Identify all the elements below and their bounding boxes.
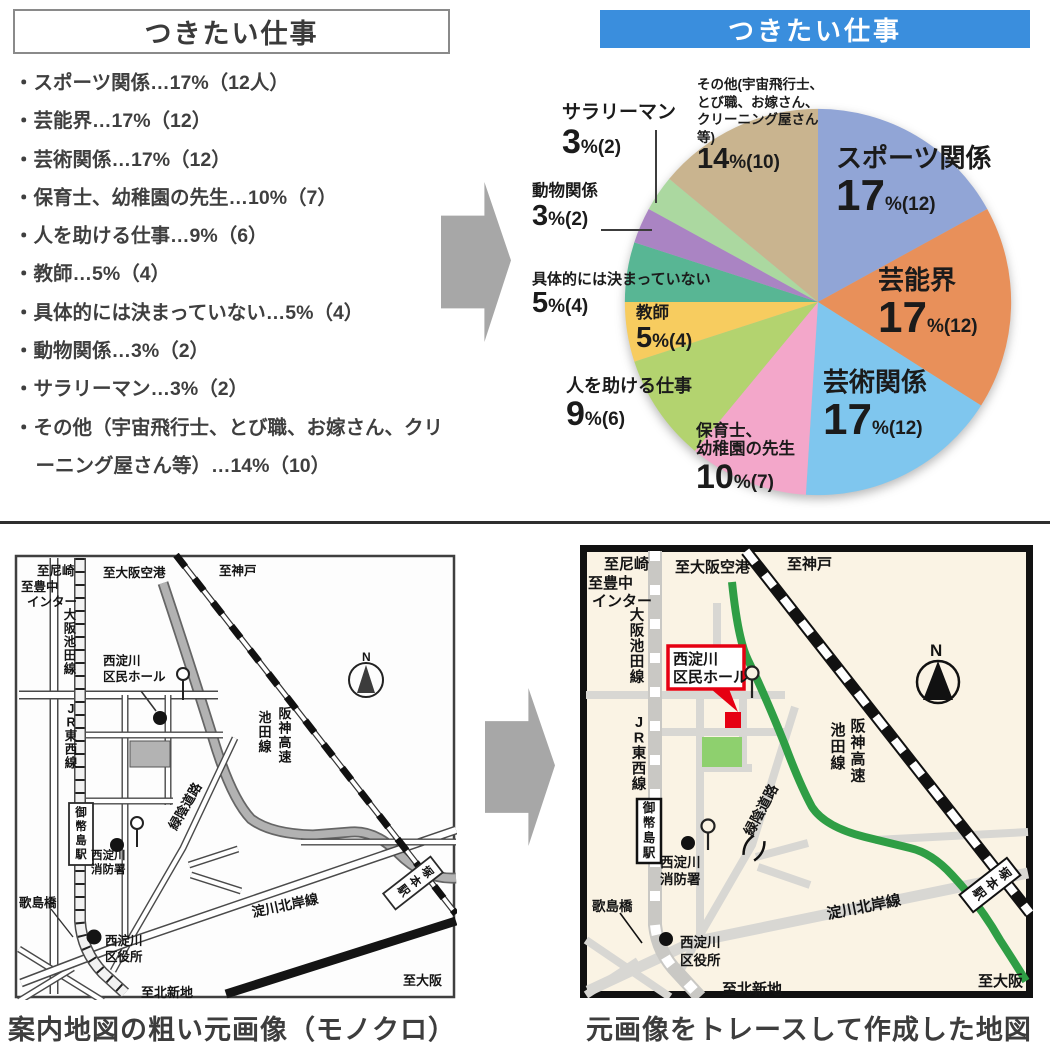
job-list: スポーツ関係…17%（12人） 芸能界…17%（12） 芸術関係…17%（12）… xyxy=(14,64,459,485)
svg-text:阪神高速: 阪神高速 xyxy=(850,718,866,785)
park-block xyxy=(130,741,170,767)
svg-text:池田線: 池田線 xyxy=(830,721,845,772)
svg-text:西淀川: 西淀川 xyxy=(680,934,721,950)
svg-text:大阪池田線: 大阪池田線 xyxy=(64,607,77,676)
pie-label-geijutsu: 芸術関係 17%(12) xyxy=(823,368,927,444)
svg-text:歌島橋: 歌島橋 xyxy=(592,898,633,914)
ward-office-dot xyxy=(87,930,102,945)
map-monochrome: 御幣島駅 塚本駅 N 至尼崎 至大阪空港 至神戸 xyxy=(13,553,457,1000)
svg-text:N: N xyxy=(362,650,371,664)
svg-text:消防署: 消防署 xyxy=(91,862,126,876)
chart-title: つきたい仕事 xyxy=(728,11,902,48)
list-item: 人を助ける仕事…9%（6） xyxy=(14,217,459,255)
svg-text:至大阪空港: 至大阪空港 xyxy=(103,565,166,580)
svg-text:至尼崎: 至尼崎 xyxy=(37,563,75,578)
list-title: つきたい仕事 xyxy=(145,12,319,51)
svg-text:至大阪: 至大阪 xyxy=(978,972,1024,990)
leader-line xyxy=(655,130,657,203)
hall-label: 西淀川 xyxy=(673,650,718,668)
svg-text:西淀川: 西淀川 xyxy=(103,653,141,668)
pie-label-hoikushi: 保育士、 幼稚園の先生 10%(7) xyxy=(696,423,795,495)
list-item: 教師…5%（4） xyxy=(14,255,459,293)
svg-text:至大阪: 至大阪 xyxy=(403,973,443,988)
pie-label-salaryman: サラリーマン 3%(2) xyxy=(562,103,676,160)
chart-title-banner: つきたい仕事 xyxy=(600,10,1030,48)
svg-text:至豊中: 至豊中 xyxy=(588,574,633,592)
svg-text:西淀川: 西淀川 xyxy=(105,933,143,948)
hall-marker-dot xyxy=(153,711,167,725)
transform-arrow-icon xyxy=(485,688,555,846)
svg-text:大阪池田線: 大阪池田線 xyxy=(630,606,645,686)
list-title-box: つきたい仕事 xyxy=(13,9,450,54)
svg-text:西淀川: 西淀川 xyxy=(91,848,126,862)
map-traced: 塚本駅 御幣島駅 N 西淀川 区民ホール xyxy=(580,545,1033,998)
svg-text:至大阪空港: 至大阪空港 xyxy=(675,558,751,576)
right-map-caption: 元画像をトレースして作成した地図 xyxy=(586,1008,1032,1047)
svg-text:至尼崎: 至尼崎 xyxy=(604,556,649,573)
fire-station-dot xyxy=(681,836,695,850)
svg-text:至神戸: 至神戸 xyxy=(219,563,257,578)
pie-label-dobutsu: 動物関係 3%(2) xyxy=(532,183,598,232)
svg-text:至北新地: 至北新地 xyxy=(141,985,193,1000)
leader-line xyxy=(601,229,652,231)
svg-text:区民ホール: 区民ホール xyxy=(103,670,166,684)
section-divider xyxy=(0,521,1050,524)
svg-text:N: N xyxy=(930,641,942,660)
pie-label-gutaiteki: 具体的には決まっていない 5%(4) xyxy=(532,272,711,320)
pie-label-tasukeru: 人を助ける仕事 9%(6) xyxy=(566,377,692,433)
svg-text:インター: インター xyxy=(27,594,77,609)
svg-text:阪神高速: 阪神高速 xyxy=(278,706,292,765)
list-item: 動物関係…3%（2） xyxy=(14,332,459,370)
list-item: サラリーマン…3%（2） xyxy=(14,370,459,408)
list-item: 具体的には決まっていない…5%（4） xyxy=(14,294,459,332)
pie-label-sonota: その他(宇宙飛行士、 とび職、お嫁さん、 クリーニング屋さん 等) 14%(10… xyxy=(697,76,823,176)
page: つきたい仕事 スポーツ関係…17%（12人） 芸能界…17%（12） 芸術関係…… xyxy=(0,0,1050,1050)
list-item: 保育士、幼稚園の先生…10%（7） xyxy=(14,179,459,217)
svg-text:西淀川: 西淀川 xyxy=(660,854,701,870)
list-item: その他（宇宙飛行士、とび職、お嫁さん、クリーニング屋さん等）…14%（10） xyxy=(14,409,459,486)
svg-text:至豊中: 至豊中 xyxy=(21,579,59,594)
svg-text:至北新地: 至北新地 xyxy=(722,980,782,998)
hall-marker-square xyxy=(725,712,741,728)
svg-text:区役所: 区役所 xyxy=(105,949,143,964)
list-item: 芸術関係…17%（12） xyxy=(14,141,459,179)
ward-office-dot xyxy=(659,932,673,946)
left-map-caption: 案内地図の粗い元画像（モノクロ） xyxy=(8,1008,456,1047)
svg-text:区役所: 区役所 xyxy=(680,952,721,968)
list-item: 芸能界…17%（12） xyxy=(14,102,459,140)
list-item: スポーツ関係…17%（12人） xyxy=(14,64,459,102)
svg-text:歌島橋: 歌島橋 xyxy=(19,895,57,910)
svg-text:至神戸: 至神戸 xyxy=(787,555,832,573)
park-block xyxy=(702,737,742,767)
svg-text:消防署: 消防署 xyxy=(660,871,701,887)
hall-label: 区民ホール xyxy=(673,669,748,686)
pie-label-sports: スポーツ関係 17%(12) xyxy=(836,144,991,220)
svg-text:池田線: 池田線 xyxy=(258,710,272,754)
pie-label-geinokai: 芸能界 17%(12) xyxy=(878,266,978,342)
